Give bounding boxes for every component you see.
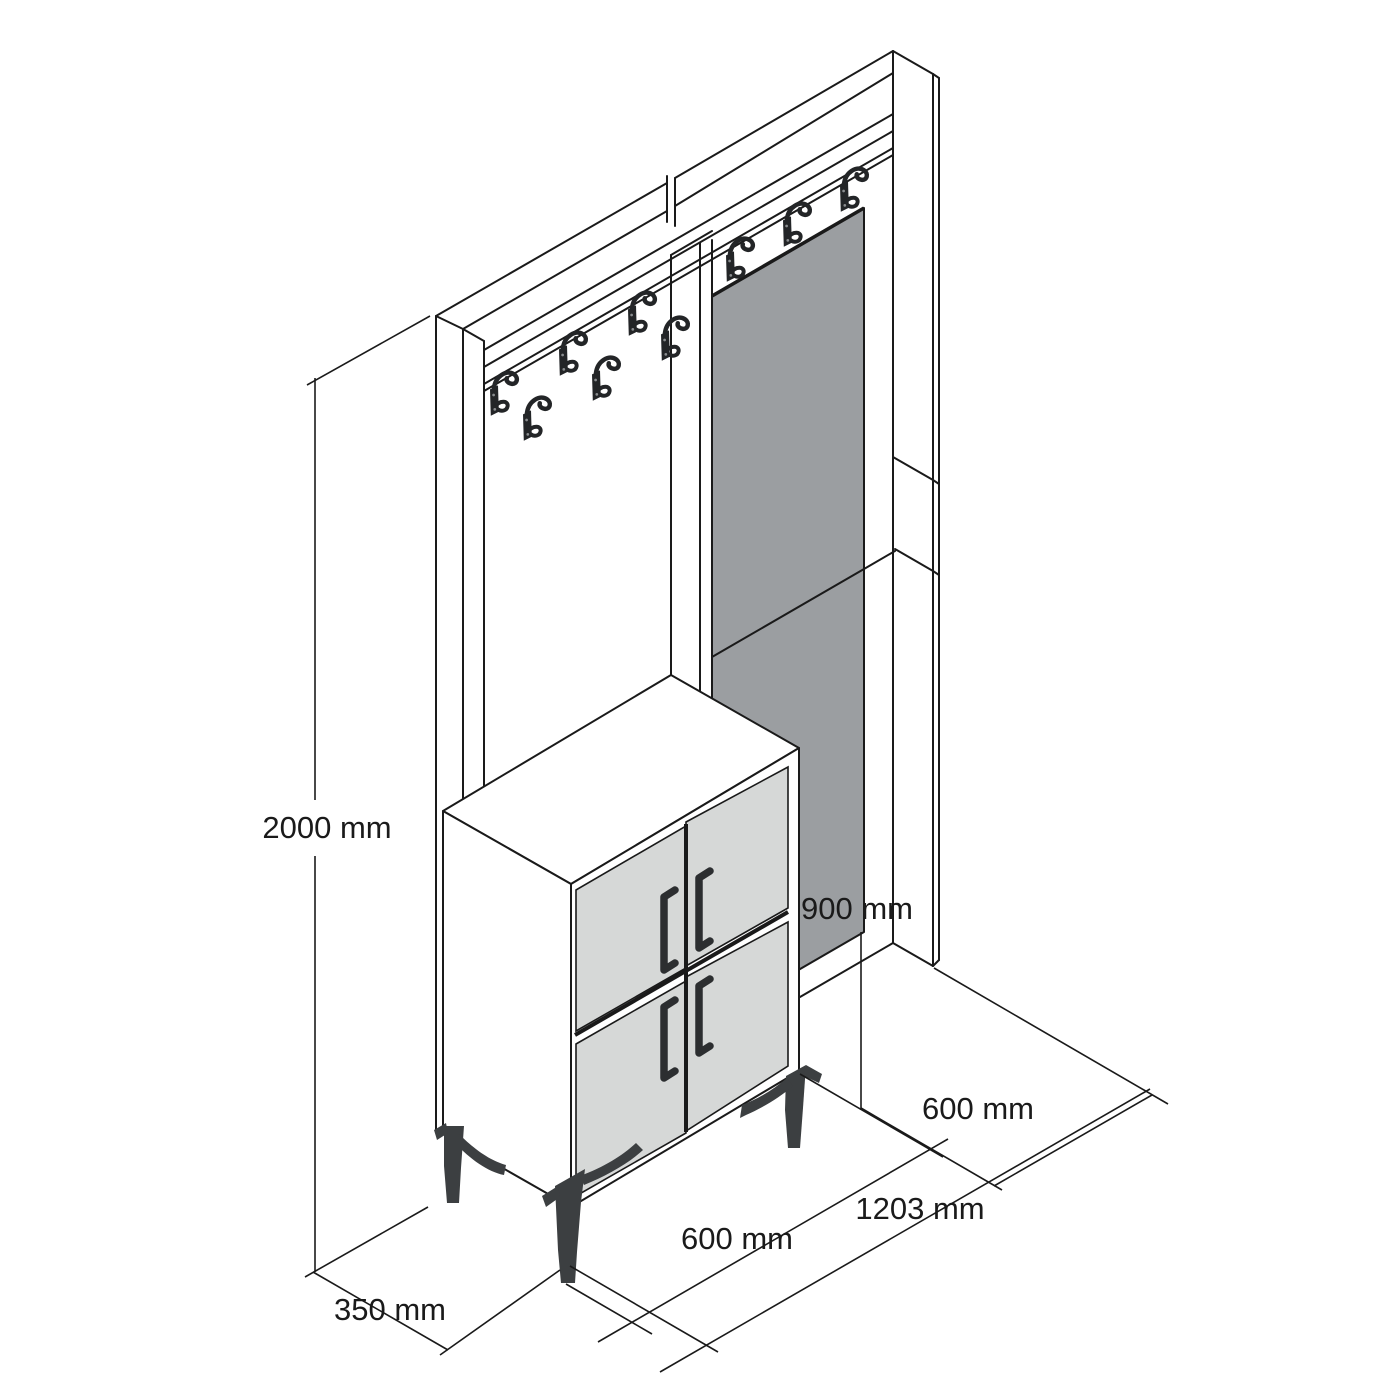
dim-total-width-label: 1203 mm bbox=[855, 1191, 984, 1226]
shoe-cabinet bbox=[443, 675, 799, 1207]
dim-mirror-bottom-height-label: 900 mm bbox=[801, 891, 913, 926]
coat-hook-icon bbox=[840, 169, 867, 212]
leg-front-left bbox=[555, 1169, 585, 1283]
center-divider bbox=[671, 231, 712, 692]
dim-total-height-label: 2000 mm bbox=[262, 810, 391, 845]
coat-hook-icon bbox=[661, 318, 688, 361]
dim-right-section-width-label: 600 mm bbox=[922, 1091, 1034, 1126]
coat-hook-icon bbox=[523, 398, 550, 441]
isometric-furniture-drawing: 2000 mm 350 mm 600 mm 1203 mm 600 mm 900… bbox=[0, 0, 1400, 1400]
dim-base-depth-label: 350 mm bbox=[334, 1292, 446, 1327]
technical-drawing-canvas: 2000 mm 350 mm 600 mm 1203 mm 600 mm 900… bbox=[0, 0, 1400, 1400]
dim-cabinet-width-label: 600 mm bbox=[681, 1221, 793, 1256]
leg-front-right bbox=[785, 1065, 806, 1148]
coat-hook-icon bbox=[592, 358, 619, 401]
right-side-frame bbox=[893, 51, 939, 966]
